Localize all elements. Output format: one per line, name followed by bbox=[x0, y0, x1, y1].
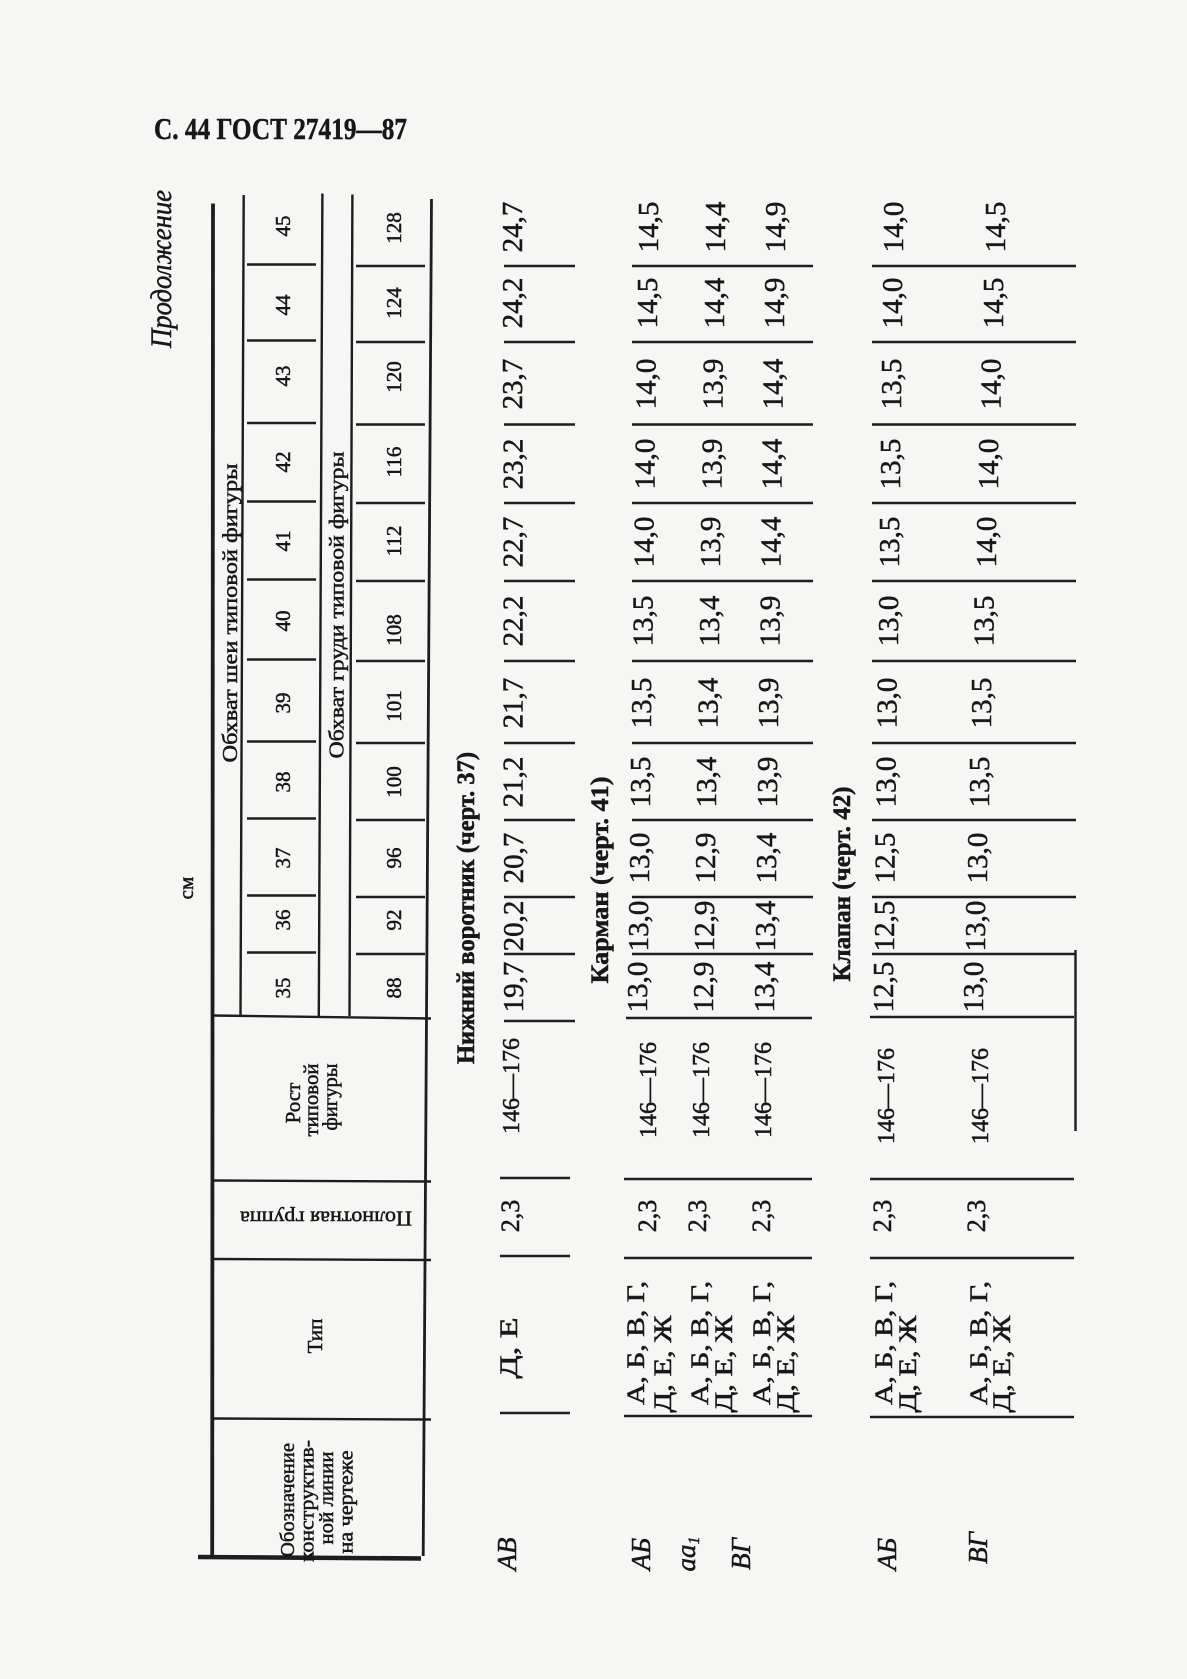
svg-text:20,2: 20,2 bbox=[498, 901, 530, 952]
svg-text:14,0: 14,0 bbox=[877, 278, 909, 329]
svg-text:124: 124 bbox=[382, 287, 406, 319]
svg-text:21,7: 21,7 bbox=[498, 678, 530, 729]
svg-text:14,0: 14,0 bbox=[631, 359, 663, 410]
svg-text:фигуры: фигуры bbox=[318, 1064, 342, 1131]
svg-text:13,4: 13,4 bbox=[749, 961, 781, 1012]
svg-text:2,3: 2,3 bbox=[868, 1200, 897, 1233]
svg-text:116: 116 bbox=[382, 447, 406, 478]
svg-text:13,0: 13,0 bbox=[871, 757, 903, 808]
svg-text:14,9: 14,9 bbox=[759, 278, 791, 329]
svg-text:13,5: 13,5 bbox=[627, 596, 659, 647]
svg-text:12,5: 12,5 bbox=[869, 901, 901, 952]
svg-text:Обхват шеи типовой фигуры: Обхват шеи типовой фигуры bbox=[218, 464, 242, 763]
svg-text:146—176: 146—176 bbox=[751, 1042, 777, 1138]
svg-text:Обхват груди типовой фигуры: Обхват груди типовой фигуры bbox=[325, 452, 349, 759]
svg-text:14,5: 14,5 bbox=[633, 202, 665, 253]
svg-text:Полнотная группа: Полнотная группа bbox=[239, 1207, 412, 1231]
svg-text:13,0: 13,0 bbox=[962, 833, 994, 884]
svg-text:13,0: 13,0 bbox=[623, 901, 655, 952]
svg-text:112: 112 bbox=[382, 526, 406, 557]
svg-text:Д, Е, Ж: Д, Е, Ж bbox=[650, 1315, 677, 1413]
svg-text:12,9: 12,9 bbox=[690, 833, 722, 884]
svg-text:14,4: 14,4 bbox=[757, 438, 789, 489]
svg-text:АВ: АВ bbox=[492, 1538, 522, 1573]
svg-text:13,9: 13,9 bbox=[753, 678, 785, 729]
svg-text:13,0: 13,0 bbox=[872, 678, 904, 729]
svg-text:23,7: 23,7 bbox=[497, 359, 529, 410]
svg-text:12,9: 12,9 bbox=[688, 962, 720, 1013]
svg-text:13,5: 13,5 bbox=[969, 596, 1001, 647]
svg-text:Д, Е, Ж: Д, Е, Ж bbox=[711, 1315, 738, 1413]
svg-text:44: 44 bbox=[271, 294, 295, 316]
svg-text:А, Б, В, Г,: А, Б, В, Г, bbox=[871, 1281, 898, 1405]
svg-text:13,0: 13,0 bbox=[622, 962, 654, 1013]
svg-text:19,7: 19,7 bbox=[498, 962, 530, 1013]
svg-text:Карман (черт. 41): Карман (черт. 41) bbox=[587, 777, 614, 984]
svg-text:2,3: 2,3 bbox=[962, 1200, 991, 1233]
svg-text:Д, Е, Ж: Д, Е, Ж bbox=[989, 1315, 1016, 1413]
svg-text:22,7: 22,7 bbox=[497, 517, 529, 568]
svg-text:100: 100 bbox=[382, 766, 406, 798]
svg-text:Тип: Тип bbox=[303, 1319, 327, 1354]
svg-text:13,4: 13,4 bbox=[693, 677, 725, 728]
svg-text:146—176: 146—176 bbox=[636, 1042, 662, 1138]
svg-text:14,0: 14,0 bbox=[975, 359, 1007, 410]
svg-text:14,4: 14,4 bbox=[755, 516, 787, 567]
svg-text:35: 35 bbox=[271, 978, 295, 999]
svg-text:146—176: 146—176 bbox=[689, 1042, 715, 1138]
svg-text:146—176: 146—176 bbox=[874, 1048, 900, 1144]
svg-text:13,5: 13,5 bbox=[966, 678, 998, 729]
svg-text:13,4: 13,4 bbox=[691, 756, 723, 807]
svg-text:Д, Е, Ж: Д, Е, Ж bbox=[773, 1315, 800, 1413]
svg-text:14,5: 14,5 bbox=[632, 278, 664, 329]
svg-text:С. 44 ГОСТ 27419—87: С. 44 ГОСТ 27419—87 bbox=[154, 111, 407, 146]
svg-text:АБ: АБ bbox=[626, 1538, 656, 1572]
svg-text:Нижний воротник (черт. 37): Нижний воротник (черт. 37) bbox=[453, 752, 480, 1064]
svg-text:13,9: 13,9 bbox=[695, 517, 727, 568]
svg-text:146—176: 146—176 bbox=[968, 1048, 994, 1144]
svg-text:см: см bbox=[174, 877, 198, 900]
svg-text:13,0: 13,0 bbox=[873, 596, 905, 647]
svg-text:14,9: 14,9 bbox=[760, 202, 792, 253]
svg-text:Д, Е, Ж: Д, Е, Ж bbox=[895, 1315, 922, 1413]
svg-text:14,4: 14,4 bbox=[758, 358, 790, 409]
svg-text:14,0: 14,0 bbox=[630, 439, 662, 490]
svg-text:АБ: АБ bbox=[872, 1538, 902, 1572]
svg-text:36: 36 bbox=[271, 910, 295, 931]
svg-text:А, Б, В, Г,: А, Б, В, Г, bbox=[623, 1281, 650, 1405]
svg-text:13,5: 13,5 bbox=[874, 517, 906, 568]
svg-text:А, Б, В, Г,: А, Б, В, Г, bbox=[749, 1281, 776, 1405]
svg-text:13,9: 13,9 bbox=[752, 757, 784, 808]
svg-text:13,4: 13,4 bbox=[751, 832, 783, 883]
svg-text:2,3: 2,3 bbox=[683, 1200, 712, 1233]
svg-text:21,2: 21,2 bbox=[498, 757, 530, 808]
svg-text:14,0: 14,0 bbox=[971, 517, 1003, 568]
svg-text:14,5: 14,5 bbox=[978, 278, 1010, 329]
svg-text:13,9: 13,9 bbox=[698, 359, 730, 410]
svg-text:13,4: 13,4 bbox=[694, 595, 726, 646]
svg-text:92: 92 bbox=[382, 910, 406, 931]
svg-text:45: 45 bbox=[271, 216, 295, 237]
svg-text:38: 38 bbox=[271, 772, 295, 793]
svg-text:128: 128 bbox=[382, 212, 406, 244]
svg-text:22,2: 22,2 bbox=[498, 596, 530, 647]
svg-text:13,0: 13,0 bbox=[958, 962, 990, 1013]
svg-text:2,3: 2,3 bbox=[747, 1200, 776, 1233]
svg-text:на чертеже: на чертеже bbox=[336, 1450, 358, 1553]
svg-text:14,0: 14,0 bbox=[628, 517, 660, 568]
svg-text:120: 120 bbox=[382, 361, 406, 393]
svg-text:ВГ: ВГ bbox=[963, 1530, 993, 1563]
svg-text:13,0: 13,0 bbox=[624, 833, 656, 884]
svg-text:13,4: 13,4 bbox=[750, 900, 782, 951]
svg-text:39: 39 bbox=[271, 693, 295, 714]
svg-text:14,0: 14,0 bbox=[973, 439, 1005, 490]
svg-text:2,3: 2,3 bbox=[633, 1200, 662, 1233]
svg-text:24,2: 24,2 bbox=[497, 278, 529, 329]
svg-text:20,7: 20,7 bbox=[498, 833, 530, 884]
svg-text:108: 108 bbox=[382, 614, 406, 646]
svg-text:13,5: 13,5 bbox=[625, 757, 657, 808]
svg-text:40: 40 bbox=[271, 611, 295, 632]
svg-text:42: 42 bbox=[271, 452, 295, 473]
svg-text:13,5: 13,5 bbox=[626, 678, 658, 729]
svg-text:101: 101 bbox=[382, 690, 406, 722]
svg-text:ВГ: ВГ bbox=[726, 1536, 756, 1569]
svg-text:88: 88 bbox=[382, 978, 406, 999]
svg-text:12,9: 12,9 bbox=[689, 901, 721, 952]
svg-text:13,0: 13,0 bbox=[960, 901, 992, 952]
svg-text:23,2: 23,2 bbox=[497, 439, 529, 490]
svg-text:Д, Е: Д, Е bbox=[496, 1318, 523, 1379]
svg-text:Продолжение: Продолжение bbox=[145, 190, 178, 349]
svg-text:13,5: 13,5 bbox=[875, 439, 907, 490]
svg-text:Клапан (черт. 42): Клапан (черт. 42) bbox=[829, 787, 856, 982]
svg-text:41: 41 bbox=[271, 531, 295, 552]
svg-text:14,0: 14,0 bbox=[878, 202, 910, 253]
svg-text:146—176: 146—176 bbox=[499, 1038, 525, 1134]
svg-text:12,5: 12,5 bbox=[868, 962, 900, 1013]
svg-text:А, Б, В, Г,: А, Б, В, Г, bbox=[687, 1281, 714, 1405]
svg-text:12,5: 12,5 bbox=[870, 833, 902, 884]
svg-text:13,5: 13,5 bbox=[876, 359, 908, 410]
svg-text:43: 43 bbox=[271, 366, 295, 387]
svg-text:14,4: 14,4 bbox=[699, 277, 731, 328]
svg-text:14,4: 14,4 bbox=[700, 201, 732, 252]
svg-text:13,5: 13,5 bbox=[964, 757, 996, 808]
svg-text:37: 37 bbox=[271, 848, 295, 869]
svg-text:14,5: 14,5 bbox=[980, 202, 1012, 253]
svg-text:24,7: 24,7 bbox=[497, 202, 529, 253]
svg-text:13,9: 13,9 bbox=[696, 439, 728, 490]
svg-text:2,3: 2,3 bbox=[496, 1200, 525, 1233]
svg-text:13,9: 13,9 bbox=[754, 596, 786, 647]
svg-text:96: 96 bbox=[382, 848, 406, 869]
